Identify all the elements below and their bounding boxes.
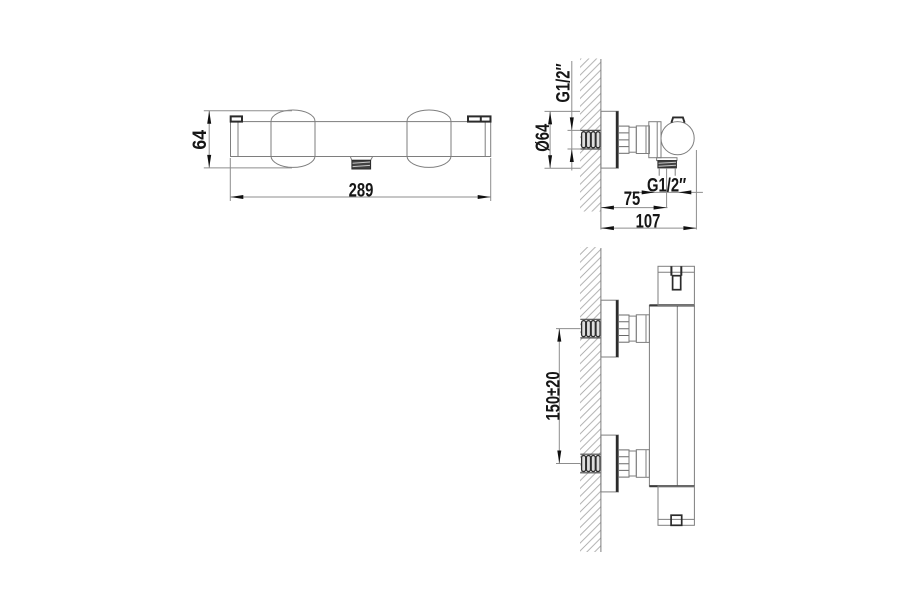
- svg-text:75: 75: [624, 188, 640, 209]
- svg-text:64: 64: [188, 129, 210, 149]
- svg-text:G1/2″: G1/2″: [553, 63, 574, 102]
- svg-text:150±20: 150±20: [543, 371, 564, 420]
- svg-text:107: 107: [636, 211, 661, 232]
- svg-text:289: 289: [349, 180, 374, 201]
- svg-text:Ø64: Ø64: [532, 123, 553, 151]
